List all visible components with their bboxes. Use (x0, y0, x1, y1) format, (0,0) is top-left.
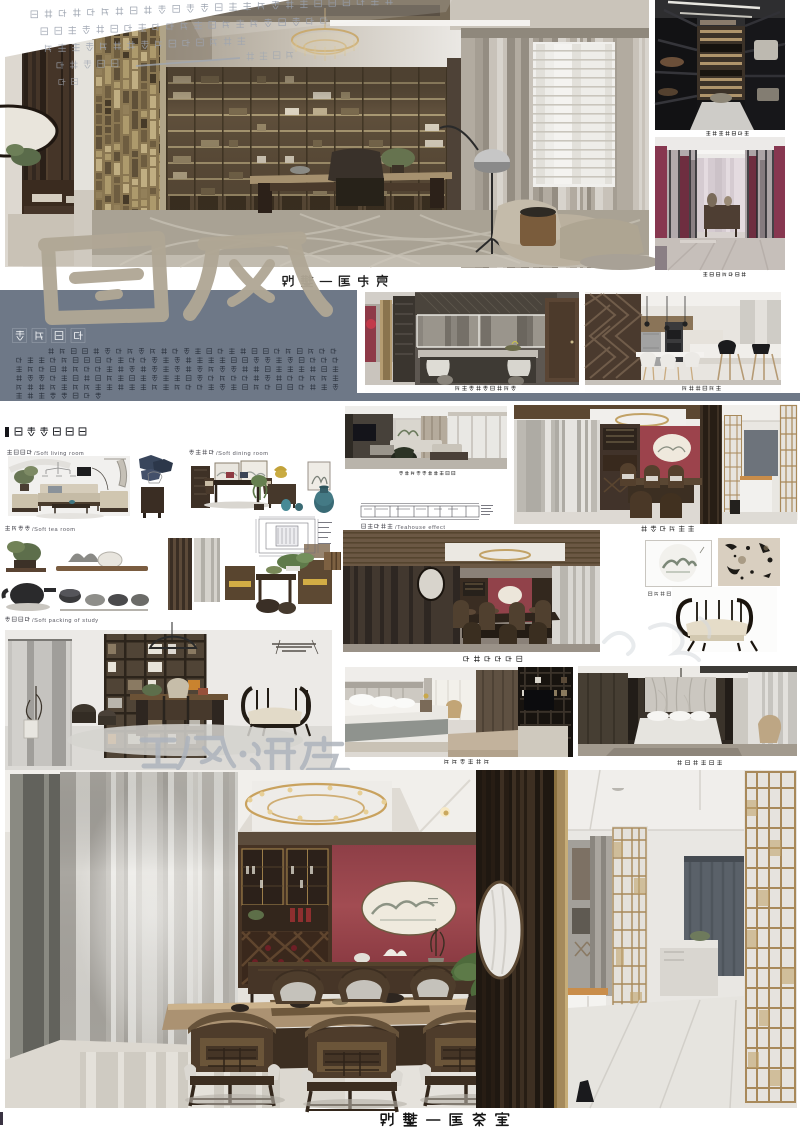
svg-text:/Soft packing of study: /Soft packing of study (32, 618, 99, 624)
svg-text:/Soft tea room: /Soft tea room (32, 527, 76, 533)
svg-text:/Soft dining room: /Soft dining room (216, 451, 269, 457)
